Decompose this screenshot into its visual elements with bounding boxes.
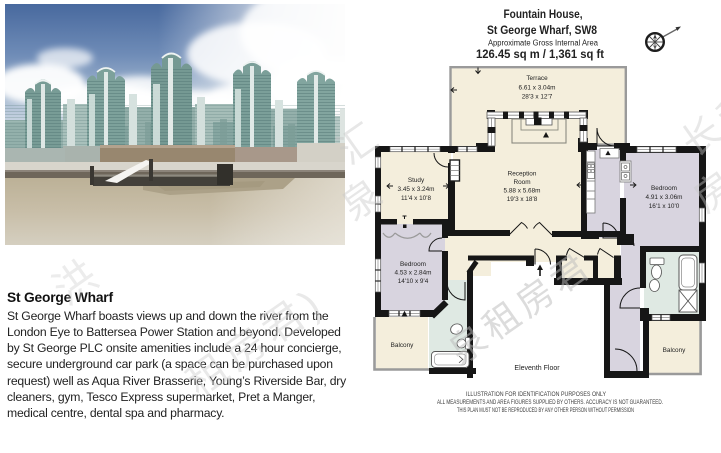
svg-text:ILLUSTRATION FOR IDENTIFICATIO: ILLUSTRATION FOR IDENTIFICATION PURPOSES… (466, 391, 606, 398)
svg-text:Balcony: Balcony (663, 347, 687, 354)
svg-text:Bedroom: Bedroom (651, 185, 677, 192)
svg-text:Room: Room (513, 179, 530, 186)
svg-text:THIS PLAN MUST NOT BE REPRODUC: THIS PLAN MUST NOT BE REPRODUCED BY ANY … (457, 407, 634, 414)
svg-text:4.53 x 2.84m: 4.53 x 2.84m (395, 270, 432, 277)
svg-text:Terrace: Terrace (526, 75, 548, 82)
svg-text:19'3 x 18'8: 19'3 x 18'8 (507, 196, 538, 203)
svg-text:St George Wharf, SW8: St George Wharf, SW8 (487, 23, 597, 37)
svg-text:14'10 x 9'4: 14'10 x 9'4 (398, 278, 429, 285)
svg-text:ALL MEASUREMENTS AND AREA FIGU: ALL MEASUREMENTS AND AREA FIGURES SUPPLI… (437, 399, 663, 406)
svg-text:5.88 x 5.68m: 5.88 x 5.68m (504, 188, 541, 195)
svg-text:16'1 x 10'0: 16'1 x 10'0 (649, 203, 680, 210)
svg-text:Fountain House,: Fountain House, (504, 7, 583, 21)
svg-text:28'3 x 12'7: 28'3 x 12'7 (522, 94, 553, 101)
svg-text:3.45 x 3.24m: 3.45 x 3.24m (398, 186, 435, 193)
svg-text:126.45 sq m / 1,361 sq ft: 126.45 sq m / 1,361 sq ft (476, 47, 604, 61)
svg-text:6.61 x 3.04m: 6.61 x 3.04m (519, 85, 556, 92)
svg-text:Reception: Reception (508, 171, 537, 178)
svg-text:Study: Study (408, 177, 425, 184)
svg-text:4.91 x 3.06m: 4.91 x 3.06m (646, 194, 683, 201)
svg-text:Eleventh Floor: Eleventh Floor (514, 365, 560, 372)
svg-text:Bedroom: Bedroom (400, 261, 426, 268)
svg-text:11'4 x 10'8: 11'4 x 10'8 (401, 195, 431, 202)
